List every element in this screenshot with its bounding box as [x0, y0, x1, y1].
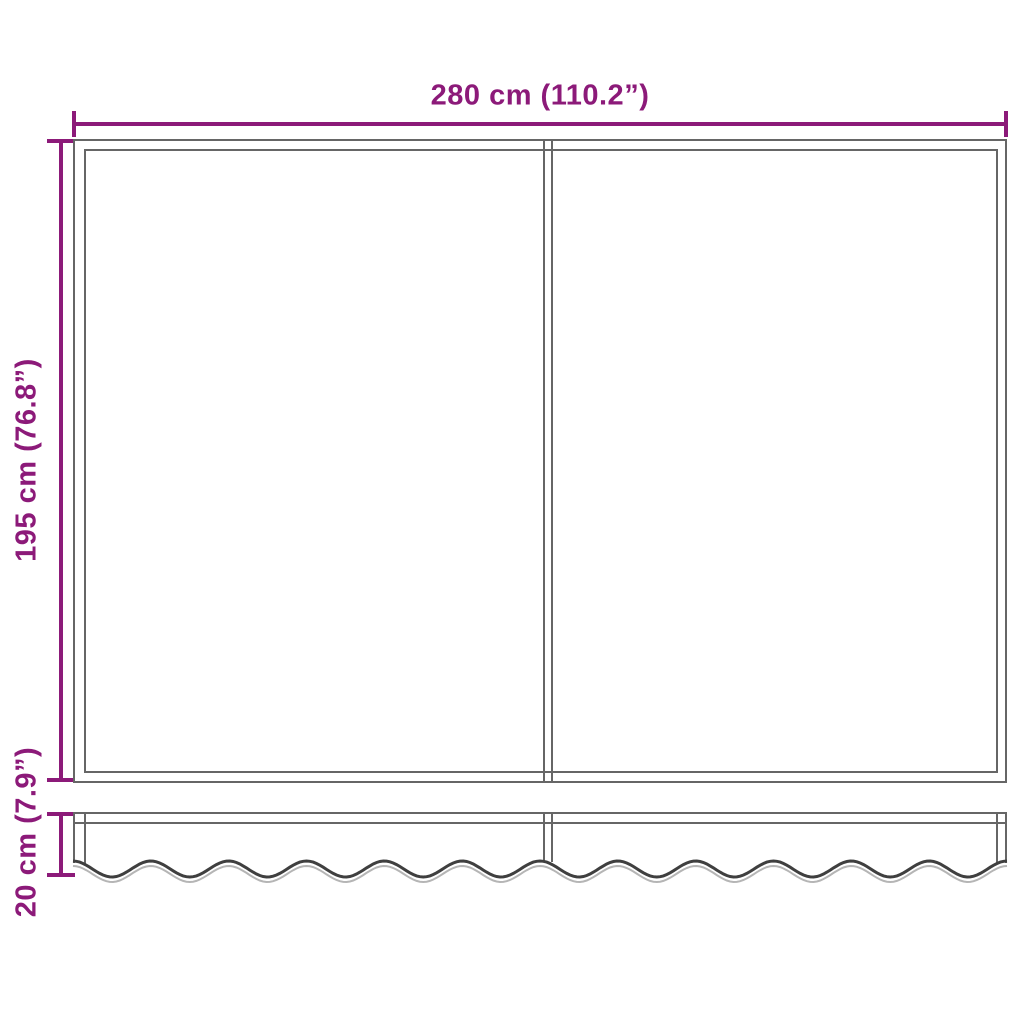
- height-dimension-label: 195 cm (76.8”): [11, 358, 44, 562]
- fabric-inner-rect: [84, 149, 998, 773]
- height-dimension-cap-top: [47, 139, 75, 143]
- valance-wave: [73, 845, 1007, 907]
- height-dimension-cap-bottom: [47, 778, 75, 782]
- valance-dimension-label: 20 cm (7.9”): [11, 747, 44, 917]
- valance-top-seam: [73, 822, 1007, 824]
- width-dimension-line: [73, 122, 1007, 126]
- width-dimension-cap-right: [1004, 111, 1008, 137]
- height-dimension-line: [59, 139, 63, 782]
- valance-dimension-cap-top: [47, 812, 75, 816]
- dimension-diagram: 280 cm (110.2”) 195 cm (76.8”) 20 cm (7.…: [0, 0, 1024, 1024]
- valance-dimension-cap-bottom: [47, 873, 75, 877]
- valance-wave-echo-line: [73, 866, 1007, 882]
- width-dimension-label: 280 cm (110.2”): [431, 80, 650, 113]
- width-dimension-cap-left: [72, 111, 76, 137]
- valance-dimension-line: [59, 812, 63, 877]
- fabric-center-seam-right: [551, 141, 553, 781]
- valance-top-edge: [73, 812, 1007, 814]
- fabric-center-seam-left: [543, 141, 545, 781]
- valance-wave-main-line: [73, 861, 1007, 877]
